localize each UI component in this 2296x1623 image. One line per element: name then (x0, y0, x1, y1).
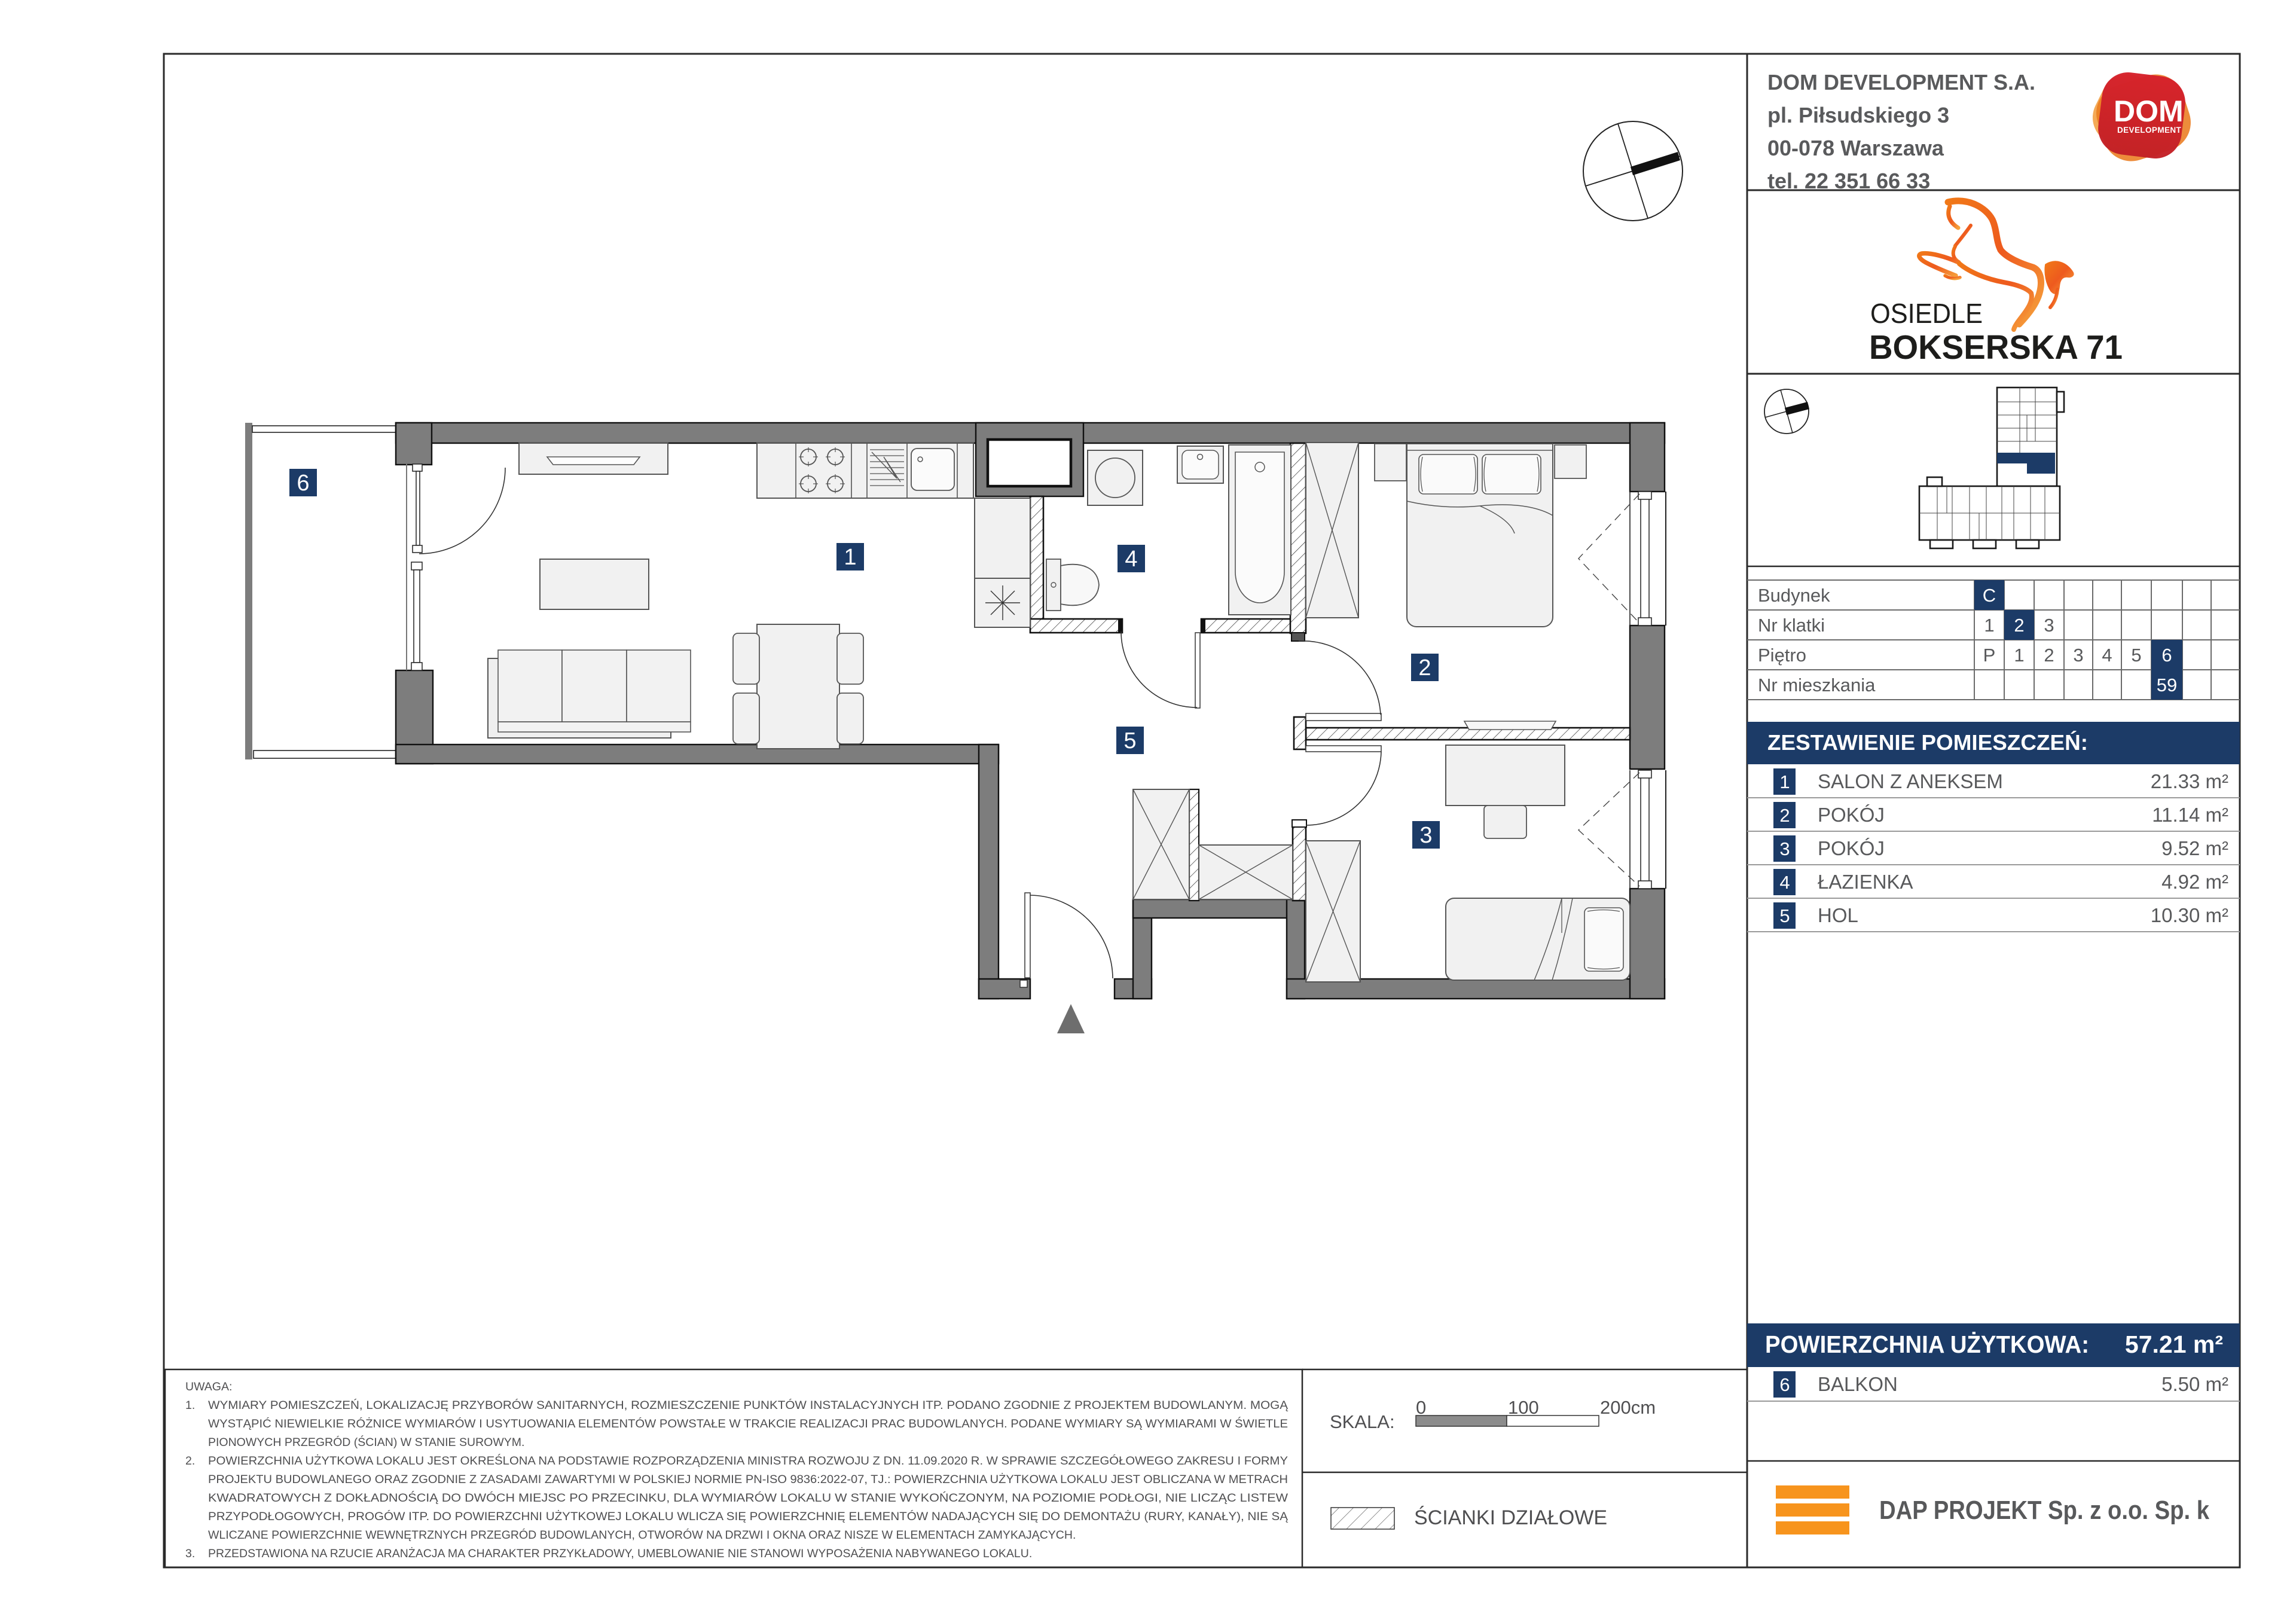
svg-text:2: 2 (1779, 805, 1790, 826)
svg-text:11.14 m²: 11.14 m² (2152, 804, 2228, 826)
svg-text:DOM: DOM (2114, 94, 2184, 128)
svg-text:2: 2 (2014, 615, 2024, 636)
svg-text:9.52 m²: 9.52 m² (2161, 837, 2228, 859)
svg-text:DEVELOPMENT: DEVELOPMENT (2117, 126, 2182, 135)
svg-text:5: 5 (1123, 728, 1136, 753)
svg-text:2.: 2. (185, 1454, 195, 1468)
svg-text:4: 4 (1125, 547, 1137, 572)
svg-text:Budynek: Budynek (1758, 585, 1830, 606)
svg-text:21.33 m²: 21.33 m² (2151, 770, 2228, 792)
svg-text:1: 1 (1779, 771, 1790, 792)
svg-text:ZESTAWIENIE POMIESZCZEŃ:: ZESTAWIENIE POMIESZCZEŃ: (1767, 730, 2088, 755)
svg-text:OSIEDLE: OSIEDLE (1870, 298, 1983, 329)
svg-text:WLICZANE POWIERZCHNIE WEWNĘTRZ: WLICZANE POWIERZCHNIE WEWNĘTRZNYCH PRZEG… (208, 1528, 1076, 1542)
svg-text:1: 1 (844, 545, 856, 570)
svg-text:POKÓJ: POKÓJ (1818, 837, 1885, 859)
svg-text:100: 100 (1508, 1397, 1539, 1418)
svg-text:DOM DEVELOPMENT S.A.: DOM DEVELOPMENT S.A. (1767, 70, 2035, 94)
svg-text:4.92 m²: 4.92 m² (2161, 871, 2228, 893)
svg-text:3: 3 (1419, 823, 1432, 848)
svg-text:4: 4 (1779, 872, 1790, 893)
svg-text:3: 3 (2073, 645, 2083, 666)
svg-text:4: 4 (2102, 645, 2112, 666)
svg-text:3: 3 (2044, 615, 2054, 636)
svg-text:200cm: 200cm (1600, 1397, 1656, 1418)
svg-text:Piętro: Piętro (1758, 645, 1806, 666)
svg-text:tel. 22 351 66 33: tel. 22 351 66 33 (1767, 169, 1930, 193)
svg-text:POWIERZCHNIA UŻYTKOWA:: POWIERZCHNIA UŻYTKOWA: (1765, 1331, 2089, 1358)
svg-text:UWAGA:: UWAGA: (185, 1380, 232, 1393)
svg-text:2: 2 (2044, 645, 2054, 666)
svg-text:BALKON: BALKON (1818, 1373, 1898, 1395)
svg-text:3: 3 (1779, 838, 1790, 859)
svg-text:PRZEDSTAWIONA NA RZUCIE ARANŻA: PRZEDSTAWIONA NA RZUCIE ARANŻACJA MA CHA… (208, 1546, 1032, 1560)
svg-text:ŁAZIENKA: ŁAZIENKA (1818, 871, 1913, 893)
svg-text:PIONOWYCH PRZEGRÓD (ŚCIAN) W S: PIONOWYCH PRZEGRÓD (ŚCIAN) W STANIE SURO… (208, 1435, 524, 1449)
svg-text:SALON Z ANEKSEM: SALON Z ANEKSEM (1818, 770, 2003, 792)
svg-text:1.: 1. (185, 1399, 195, 1412)
svg-text:6: 6 (1779, 1374, 1790, 1395)
svg-text:DAP PROJEKT Sp. z o.o. Sp. k: DAP PROJEKT Sp. z o.o. Sp. k (1879, 1496, 2209, 1525)
svg-text:2: 2 (1418, 655, 1431, 681)
svg-text:WYMIARY POMIESZCZEŃ, LOKALIZAC: WYMIARY POMIESZCZEŃ, LOKALIZACJĘ PRZYBOR… (208, 1398, 1289, 1412)
svg-text:6: 6 (297, 471, 309, 496)
svg-text:0: 0 (1416, 1397, 1426, 1418)
svg-text:KWADRATOWYCH Z DOKŁADNOŚCIĄ DO: KWADRATOWYCH Z DOKŁADNOŚCIĄ DO DWÓCH MIE… (208, 1490, 1289, 1505)
svg-text:10.30 m²: 10.30 m² (2151, 904, 2228, 926)
svg-text:C: C (1983, 585, 1996, 606)
svg-text:Nr mieszkania: Nr mieszkania (1758, 675, 1876, 695)
svg-text:WYSTĄPIĆ NIEWIELKIE RÓŻNICE WY: WYSTĄPIĆ NIEWIELKIE RÓŻNICE WYMIARÓW I U… (208, 1416, 1288, 1430)
svg-text:PROJEKTU BUDOWLANEGO ORAZ ZGOD: PROJEKTU BUDOWLANEGO ORAZ ZGODNIE Z ZASA… (208, 1472, 1288, 1486)
svg-text:POWIERZCHNIA UŻYTKOWA LOKALU J: POWIERZCHNIA UŻYTKOWA LOKALU JEST OKREŚL… (208, 1453, 1288, 1468)
svg-text:6: 6 (2161, 645, 2172, 666)
svg-text:SKALA:: SKALA: (1330, 1411, 1395, 1432)
svg-text:00-078 Warszawa: 00-078 Warszawa (1767, 136, 1944, 160)
svg-text:pl. Piłsudskiego 3: pl. Piłsudskiego 3 (1767, 103, 1949, 127)
svg-text:5.50 m²: 5.50 m² (2161, 1373, 2228, 1395)
svg-text:59: 59 (2157, 675, 2177, 695)
svg-text:PRZYPODŁOGOWYCH, PROGÓW ITP. D: PRZYPODŁOGOWYCH, PROGÓW ITP. DO POWIERZC… (208, 1509, 1289, 1523)
svg-text:POKÓJ: POKÓJ (1818, 804, 1885, 826)
svg-text:BOKSERSKA 71: BOKSERSKA 71 (1869, 328, 2123, 367)
svg-text:57.21 m²: 57.21 m² (2125, 1331, 2223, 1358)
svg-text:P: P (1983, 645, 1996, 666)
svg-text:HOL: HOL (1818, 904, 1858, 926)
svg-text:5: 5 (2131, 645, 2141, 666)
svg-text:Nr klatki: Nr klatki (1758, 615, 1825, 636)
svg-text:1: 1 (1984, 615, 1994, 636)
svg-text:3.: 3. (185, 1547, 195, 1560)
svg-text:5: 5 (1779, 905, 1790, 926)
svg-text:ŚCIANKI DZIAŁOWE: ŚCIANKI DZIAŁOWE (1414, 1506, 1607, 1529)
svg-text:1: 1 (2014, 645, 2024, 666)
